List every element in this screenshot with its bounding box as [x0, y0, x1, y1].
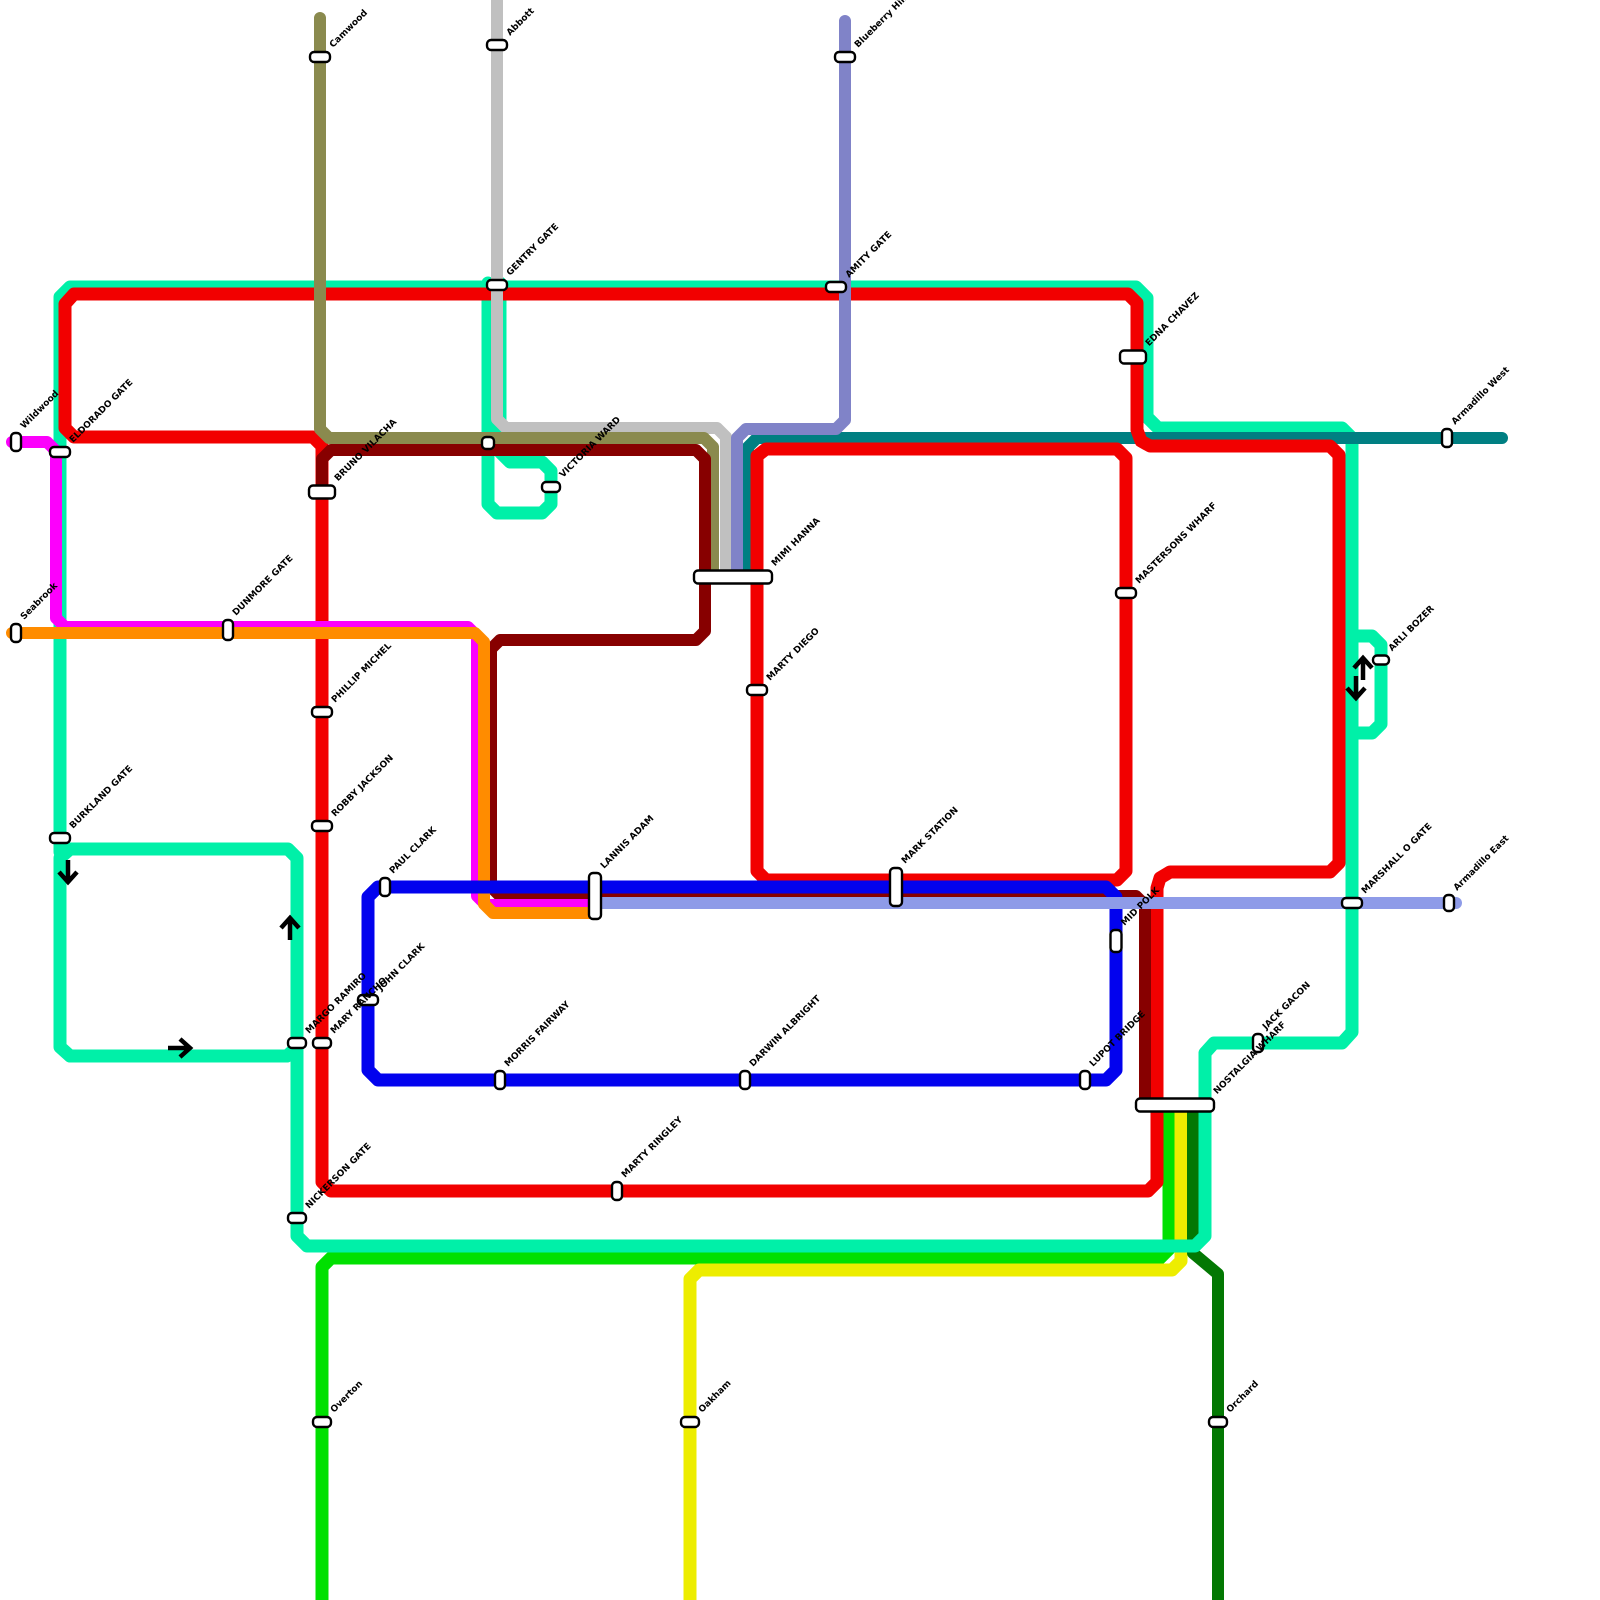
station-pendant-crossing[interactable]: [482, 437, 494, 449]
station-label-burkland-gate: BURKLAND GATE: [68, 764, 135, 831]
station-mastersons-wharf[interactable]: [1116, 588, 1136, 598]
station-seabrook[interactable]: [11, 624, 21, 642]
station-lannis-adam[interactable]: [589, 873, 601, 919]
station-morris-fairway[interactable]: [495, 1071, 505, 1089]
station-label-armadillo-west: Armadillo West: [1450, 365, 1512, 427]
station-label-nostalgia-wharf: NOSTALGIA WHARF: [1212, 1020, 1288, 1096]
station-arli-bozer[interactable]: [1373, 656, 1389, 665]
station-mid-polk[interactable]: [1111, 930, 1122, 952]
station-label-phillip-michel: PHILLIP MICHEL: [330, 641, 394, 705]
station-marshall-o-gate[interactable]: [1342, 898, 1362, 908]
station-orchard[interactable]: [1209, 1417, 1227, 1427]
station-burkland-gate[interactable]: [50, 833, 70, 843]
station-wildwood[interactable]: [11, 433, 21, 451]
station-label-amity-gate: AMITY GATE: [844, 230, 894, 280]
station-mary-rancho[interactable]: [313, 1038, 331, 1048]
station-oakham[interactable]: [681, 1417, 699, 1427]
station-amity-gate[interactable]: [826, 282, 846, 292]
station-label-darwin-albright: DARWIN ALBRIGHT: [748, 993, 824, 1069]
line-red-inner: [757, 449, 1126, 880]
station-label-mark-station: MARK STATION: [900, 805, 961, 866]
station-phillip-michel[interactable]: [312, 707, 332, 717]
station-label-overton: Overton: [329, 1379, 365, 1415]
station-label-blueberry-hill: Blueberry Hill: [853, 0, 909, 50]
station-label-oakham: Oakham: [697, 1379, 733, 1415]
station-label-marty-ringley: MARTY RINGLEY: [620, 1115, 685, 1180]
station-label-marty-diego: MARTY DIEGO: [765, 626, 822, 683]
station-mimi-hanna[interactable]: [694, 571, 772, 584]
station-label-robby-jackson: ROBBY JACKSON: [330, 753, 396, 819]
station-eldorado-gate[interactable]: [50, 447, 70, 457]
station-label-mastersons-wharf: MASTERSONS WHARF: [1134, 501, 1219, 586]
station-camwood[interactable]: [310, 52, 330, 62]
station-label-abbott: Abbott: [505, 6, 537, 38]
station-armadillo-east[interactable]: [1444, 895, 1454, 911]
station-marty-ringley[interactable]: [612, 1182, 622, 1200]
station-label-orchard: Orchard: [1225, 1379, 1261, 1415]
station-margo-ramiro[interactable]: [288, 1038, 306, 1048]
station-label-armadillo-east: Armadillo East: [1452, 833, 1512, 893]
station-gentry-gate[interactable]: [487, 280, 507, 290]
station-blueberry-hill[interactable]: [835, 52, 855, 62]
station-robby-jackson[interactable]: [312, 821, 332, 831]
station-nickerson-gate[interactable]: [288, 1213, 306, 1223]
station-label-gentry-gate: GENTRY GATE: [505, 222, 561, 278]
station-label-marshall-o-gate: MARSHALL O GATE: [1360, 822, 1434, 896]
station-label-jack-gacon: JACK GACON: [1260, 980, 1312, 1032]
station-darwin-albright[interactable]: [740, 1071, 750, 1089]
station-edna-chavez[interactable]: [1120, 351, 1146, 364]
station-label-nickerson-gate: NICKERSON GATE: [304, 1142, 373, 1211]
station-label-paul-clark: PAUL CLARK: [388, 825, 440, 877]
station-abbott[interactable]: [487, 40, 507, 50]
station-dunmore-gate[interactable]: [223, 620, 233, 640]
station-lupot-bridge[interactable]: [1080, 1071, 1090, 1089]
station-armadillo-west[interactable]: [1442, 429, 1452, 447]
station-label-camwood: Camwood: [328, 8, 370, 50]
station-paul-clark[interactable]: [380, 878, 390, 896]
transit-map-stage: CamwoodAbbottBlueberry HillGENTRY GATEAM…: [0, 0, 1600, 1600]
station-bruno-vilacha[interactable]: [309, 486, 335, 499]
station-marty-diego[interactable]: [747, 685, 767, 695]
station-label-lannis-adam: LANNIS ADAM: [599, 814, 656, 871]
station-nostalgia-wharf[interactable]: [1136, 1099, 1214, 1112]
station-mark-station[interactable]: [890, 868, 902, 906]
station-label-morris-fairway: MORRIS FAIRWAY: [503, 1000, 573, 1070]
station-label-arli-bozer: ARLI BOZER: [1387, 604, 1437, 654]
station-label-mimi-hanna: MIMI HANNA: [770, 516, 823, 569]
transit-map-canvas: CamwoodAbbottBlueberry HillGENTRY GATEAM…: [0, 0, 1600, 1600]
station-label-dunmore-gate: DUNMORE GATE: [231, 554, 295, 618]
line-blue-loop: [368, 887, 1116, 1080]
station-victoria-ward[interactable]: [542, 482, 560, 492]
station-overton[interactable]: [313, 1417, 331, 1427]
